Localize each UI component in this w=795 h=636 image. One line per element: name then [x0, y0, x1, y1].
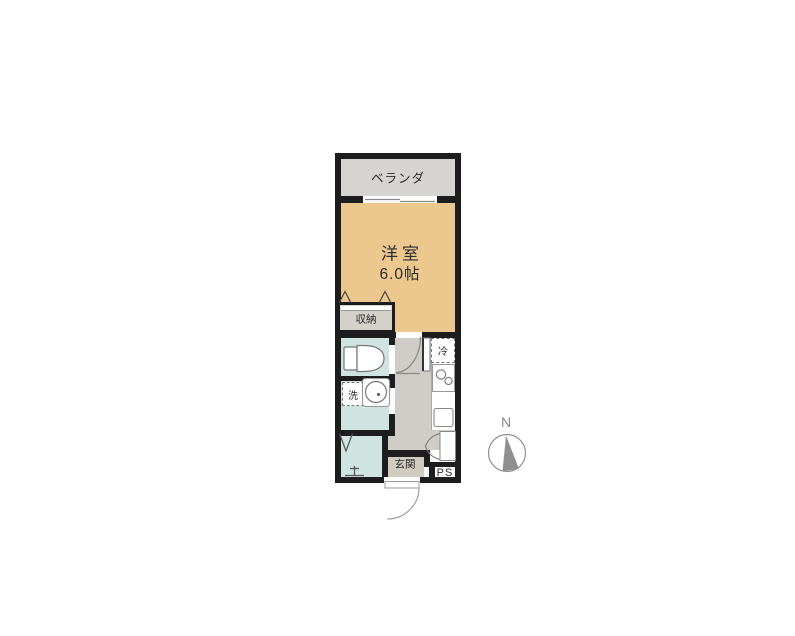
- entrance-label: 玄関: [395, 457, 416, 472]
- fixtures-layer: [0, 0, 795, 636]
- compass-icon: [489, 435, 526, 472]
- balcony-label: ベランダ: [371, 168, 425, 187]
- bath-folding-door-icon: [340, 434, 353, 452]
- stove-icon: [433, 365, 455, 392]
- room-door-swing-icon: [396, 337, 430, 374]
- toilet-icon: [344, 346, 384, 372]
- closet-folding-door-icon: [339, 292, 391, 304]
- shower-faucet-icon: [345, 466, 364, 476]
- sink-icon: [363, 379, 390, 407]
- window-slider-icon: [365, 200, 435, 202]
- entrance-door-swing-icon: [385, 482, 419, 520]
- kitchen-sink-icon: [434, 409, 453, 427]
- compass-north-label: N: [501, 414, 511, 430]
- pipe-space-label: PS: [437, 467, 454, 479]
- western-room-size-label: 6.0帖: [379, 262, 420, 284]
- floor-plan-page: 冷 洗: [0, 0, 795, 636]
- hall-folding-door-icon: [426, 432, 456, 461]
- western-room-label: 洋室: [381, 240, 423, 265]
- closet-label: 収納: [356, 312, 377, 327]
